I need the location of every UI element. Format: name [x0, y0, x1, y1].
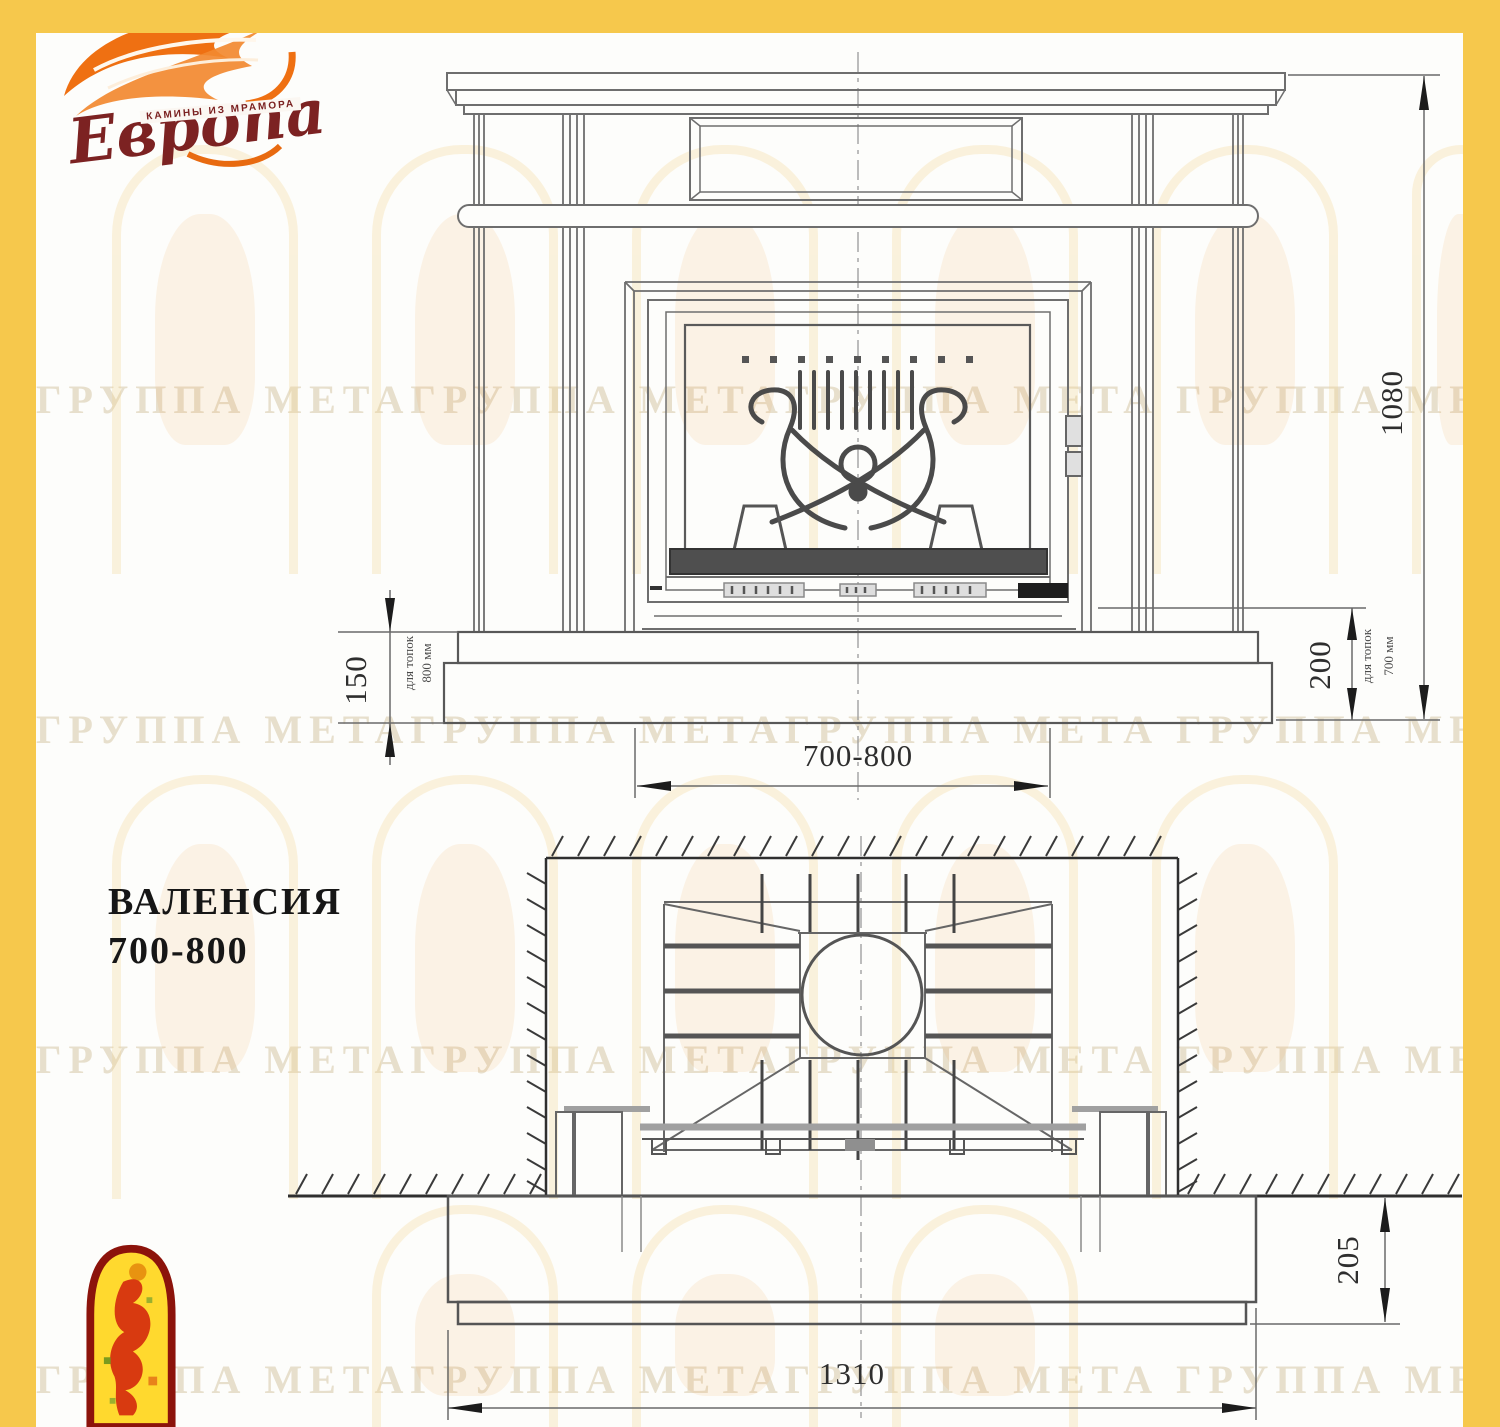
- page-border-top: [0, 0, 1500, 33]
- dim-plan-205: 205: [1330, 1200, 1366, 1320]
- hearth-slab-plan: [448, 1196, 1256, 1324]
- smoke-hood-plan: [652, 874, 1072, 1160]
- model-title-name: ВАЛЕНСИЯ: [108, 878, 342, 927]
- dim-left-note-2: 800 мм: [419, 603, 435, 723]
- dim-right-note-2: 700 мм: [1381, 596, 1397, 716]
- dim-plan-1310: 1310: [752, 1356, 952, 1392]
- dim-right-200: 200: [1302, 605, 1338, 725]
- jester-arch-logo: [85, 1243, 177, 1427]
- dim-left-note-1: для топок: [401, 603, 417, 723]
- firebox-insert: [642, 300, 1082, 629]
- catalog-page: ГРУППА МЕТАГРУППА МЕТАГРУППА МЕТА ГРУППА…: [0, 0, 1500, 1427]
- dim-right-note-1: для топок: [1359, 596, 1375, 716]
- front-view-dimensions: [338, 75, 1440, 798]
- dim-left-150: 150: [338, 620, 374, 740]
- technical-drawing: [0, 0, 1500, 1427]
- page-border-left: [0, 0, 36, 1427]
- frieze-panel: [690, 118, 1022, 200]
- page-border-right: [1463, 0, 1500, 1427]
- plan-view-drawing: [288, 836, 1462, 1324]
- front-view-drawing: [444, 73, 1285, 723]
- wall-hatching: [296, 836, 1459, 1194]
- dim-height-1080: 1080: [1374, 343, 1410, 463]
- dim-width-700-800: 700-800: [758, 738, 958, 774]
- model-title-size: 700-800: [108, 927, 342, 976]
- model-title: ВАЛЕНСИЯ 700-800: [108, 878, 342, 977]
- center-lines: [858, 52, 861, 1418]
